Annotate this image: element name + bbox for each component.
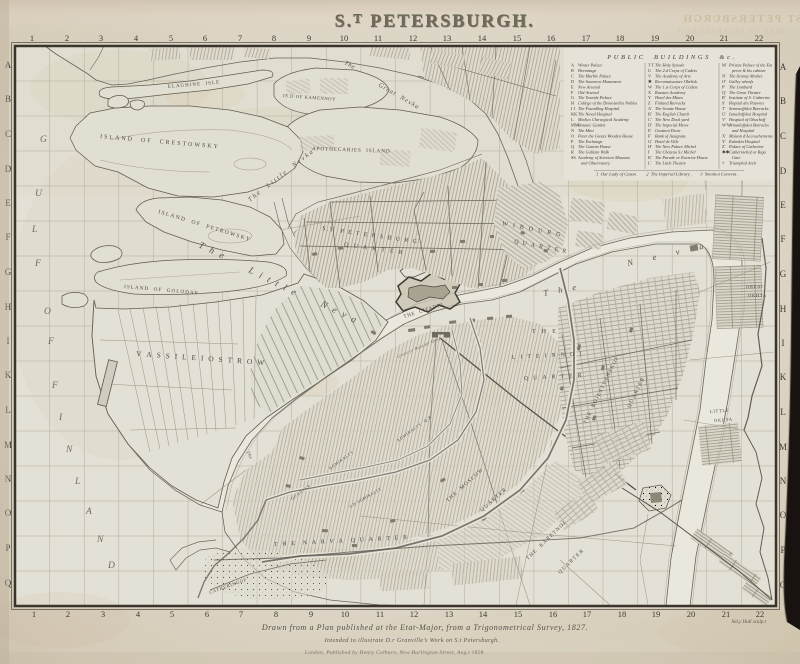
svg-text:I': I' <box>648 150 650 155</box>
svg-text:12: 12 <box>410 609 419 619</box>
svg-text:E: E <box>571 84 574 89</box>
svg-text:The Galitzin Walk: The Galitzin Walk <box>578 150 609 155</box>
svg-text:MAP OF PETERSBURGH: MAP OF PETERSBURGH <box>677 27 783 36</box>
svg-text:B': B' <box>648 112 652 117</box>
svg-text:O: O <box>44 307 51 317</box>
svg-text:H: H <box>780 304 787 314</box>
svg-text:ST PETERSBURGH: ST PETERSBURGH <box>682 13 800 25</box>
svg-text:C: C <box>780 131 786 141</box>
svg-text:Hopital des Pauvres: Hopital des Pauvres <box>728 101 764 106</box>
svg-text:19: 19 <box>651 33 660 43</box>
svg-text:18: 18 <box>616 33 625 43</box>
svg-text:Private Palace of the Em: Private Palace of the Em <box>728 63 772 68</box>
svg-text:A': A' <box>648 106 652 111</box>
svg-text:H': H' <box>648 144 652 149</box>
svg-text:C': C' <box>648 117 652 122</box>
svg-text:L: L <box>31 225 37 235</box>
svg-text:D: D <box>780 166 787 176</box>
svg-text:6: 6 <box>205 609 209 619</box>
svg-text:Gate: Gate <box>732 155 740 160</box>
svg-text:Bank of Assignats: Bank of Assignats <box>655 133 686 138</box>
svg-text:Ismailoffskoi Hospital: Ismailoffskoi Hospital <box>728 112 768 117</box>
svg-text:N: N <box>780 476 787 486</box>
svg-text:17: 17 <box>583 609 592 619</box>
svg-text:T H E: T H E <box>532 329 558 335</box>
svg-text:R': R' <box>722 95 726 100</box>
svg-text:13: 13 <box>445 609 454 619</box>
svg-text:14: 14 <box>479 609 488 619</box>
svg-text:M': M' <box>722 63 727 68</box>
svg-text:O: O <box>571 133 574 138</box>
svg-text:L': L' <box>648 161 652 166</box>
svg-text:Russian Academy: Russian Academy <box>654 90 685 95</box>
svg-text:Jemailoffskoi Barracks: Jemailoffskoi Barracks <box>729 123 769 128</box>
svg-text:10: 10 <box>341 609 350 619</box>
svg-text:2: 2 <box>66 609 70 619</box>
svg-text:I: I <box>782 338 785 348</box>
svg-text:GREAT: GREAT <box>746 284 764 289</box>
svg-text:The Exchange: The Exchange <box>578 139 603 144</box>
svg-text:Q': Q' <box>722 90 726 95</box>
svg-text:P': P' <box>722 84 725 89</box>
svg-text:peror & his cabinet: peror & his cabinet <box>731 68 766 73</box>
svg-text:Hotel des Mines: Hotel des Mines <box>654 95 683 100</box>
svg-text:14: 14 <box>478 33 487 43</box>
svg-text:7: 7 <box>238 33 242 43</box>
svg-text:13: 13 <box>443 33 452 43</box>
svg-text:Triumphal Arch: Triumphal Arch <box>729 161 756 166</box>
svg-text:The Naval Hospital: The Naval Hospital <box>578 112 612 117</box>
svg-text:Winter Palace: Winter Palace <box>578 63 603 68</box>
svg-text:L: L <box>571 117 574 122</box>
svg-text:Drawn from a Plan published at: Drawn from a Plan published at the Etat-… <box>261 623 588 632</box>
svg-text:The Marble Palace: The Marble Palace <box>578 73 611 78</box>
svg-text:M: M <box>779 442 787 452</box>
svg-text:1 Our Lady of Cazan . 2: 1 Our Lady of Cazan . 2 The Imperial Lib… <box>596 172 739 177</box>
svg-text:N: N <box>65 445 73 455</box>
svg-text:K: K <box>780 372 787 382</box>
svg-text:17: 17 <box>582 33 591 43</box>
svg-text:1: 1 <box>30 33 34 43</box>
svg-text:F: F <box>34 259 41 269</box>
svg-text:20: 20 <box>687 609 696 619</box>
svg-text:B: B <box>780 96 786 106</box>
svg-text:SS: SS <box>571 155 576 160</box>
svg-text:15: 15 <box>513 33 522 43</box>
svg-text:The English Church: The English Church <box>655 112 689 117</box>
svg-text:Z': Z' <box>722 144 726 149</box>
svg-text:16: 16 <box>549 609 558 619</box>
svg-text:T T: T T <box>648 63 655 68</box>
svg-text:G: G <box>40 135 47 145</box>
svg-text:8: 8 <box>272 33 276 43</box>
svg-text:The Tauride Palace: The Tauride Palace <box>578 95 612 100</box>
svg-text:F: F <box>51 381 58 391</box>
svg-text:2: 2 <box>65 33 69 43</box>
svg-text:O': O' <box>722 79 726 84</box>
svg-text:U': U' <box>722 112 726 117</box>
svg-text:The New Dock yard: The New Dock yard <box>655 117 690 122</box>
svg-text:7: 7 <box>239 609 243 619</box>
svg-text:Old Arsenal: Old Arsenal <box>578 90 600 95</box>
svg-text:Gostinoi Dwor: Gostinoi Dwor <box>655 128 681 133</box>
svg-text:The 2.d Corps of Cadets: The 2.d Corps of Cadets <box>655 68 697 73</box>
svg-text:F': F' <box>648 133 651 138</box>
svg-text:PUBLIC BUILDINGS &c.: PUBLIC BUILDINGS &c. <box>606 54 737 61</box>
svg-text:D: D <box>571 79 574 84</box>
svg-text:G': G' <box>648 139 652 144</box>
svg-text:Medico Chirurgical Academy: Medico Chirurgical Academy <box>577 117 629 122</box>
svg-text:5: 5 <box>169 33 173 43</box>
svg-text:Institute of S. Catherine: Institute of S. Catherine <box>728 95 770 100</box>
svg-text:11: 11 <box>374 33 382 43</box>
svg-text:N: N <box>96 535 104 545</box>
svg-text:Maison d'Accouchements: Maison d'Accouchements <box>728 133 773 138</box>
svg-text:Kalinkin Hospital: Kalinkin Hospital <box>728 139 760 144</box>
svg-text:The Foundling Hospital: The Foundling Hospital <box>578 106 620 111</box>
svg-text:Z: Z <box>648 101 651 106</box>
svg-text:9: 9 <box>307 33 311 43</box>
svg-text:N': N' <box>722 73 726 78</box>
svg-text:19: 19 <box>652 609 661 619</box>
svg-text:Palace of Catherine: Palace of Catherine <box>728 144 764 149</box>
svg-text:Galley wharfs: Galley wharfs <box>729 79 754 84</box>
svg-text:Catherinehof or Riga: Catherinehof or Riga <box>729 150 766 155</box>
svg-text:Y: Y <box>648 95 651 100</box>
svg-text:1: 1 <box>32 609 36 619</box>
svg-text:S.T PETERSBURGH.: S.T PETERSBURGH. <box>335 11 535 31</box>
svg-text:Intended to illustrate D.r Gra: Intended to illustrate D.r Granville’s W… <box>324 638 500 644</box>
svg-text:and Observatory: and Observatory <box>581 161 610 166</box>
svg-text:9: 9 <box>309 609 313 619</box>
svg-text:3: 3 <box>99 33 103 43</box>
svg-text:OKHTA: OKHTA <box>748 293 767 298</box>
svg-text:A: A <box>85 507 92 517</box>
svg-text:E': E' <box>648 128 652 133</box>
svg-text:The Holy Synode: The Holy Synode <box>655 63 684 68</box>
svg-text:S': S' <box>722 101 725 106</box>
svg-text:5: 5 <box>170 609 174 619</box>
svg-text:A: A <box>780 62 787 72</box>
svg-text:I I: I I <box>571 106 576 111</box>
svg-text:✱: ✱ <box>648 79 652 84</box>
svg-text:D: D <box>107 561 115 571</box>
svg-text:The 1.st Corps of Cadets: The 1.st Corps of Cadets <box>655 84 698 89</box>
svg-text:The Senate House: The Senate House <box>655 106 686 111</box>
svg-text:Finland Barracks: Finland Barracks <box>654 101 686 106</box>
svg-text:X': X' <box>722 133 726 138</box>
svg-text:22: 22 <box>756 609 765 619</box>
svg-text:The Suwarow Monument: The Suwarow Monument <box>578 79 622 84</box>
svg-text:Reconnaissance Obelisk: Reconnaissance Obelisk <box>654 79 697 84</box>
svg-text:H: H <box>571 101 574 106</box>
svg-text:6: 6 <box>203 33 207 43</box>
svg-text:The Academy of Arts: The Academy of Arts <box>655 73 691 78</box>
svg-text:D': D' <box>648 123 652 128</box>
svg-text:K': K' <box>648 155 652 160</box>
svg-text:Botanic Garden: Botanic Garden <box>578 123 605 128</box>
svg-text:F: F <box>47 337 54 347</box>
svg-text:The Sennoy Market: The Sennoy Market <box>729 73 763 78</box>
svg-text:12: 12 <box>409 33 418 43</box>
svg-text:The Mint: The Mint <box>578 128 594 133</box>
svg-text:The Custom House: The Custom House <box>578 144 611 149</box>
svg-text:11: 11 <box>376 609 384 619</box>
svg-text:C: C <box>571 73 574 78</box>
svg-text:The Little Theatre: The Little Theatre <box>655 161 686 166</box>
svg-text:L: L <box>74 477 80 487</box>
svg-text:10: 10 <box>340 33 349 43</box>
svg-text:Sid.y Hall sculp.t: Sid.y Hall sculp.t <box>732 620 767 625</box>
svg-text:The New Palace Michel: The New Palace Michel <box>655 144 697 149</box>
svg-text:8: 8 <box>274 609 278 619</box>
svg-text:and Hospital: and Hospital <box>732 128 755 133</box>
svg-text:Academy of Sciences Museum: Academy of Sciences Museum <box>577 155 630 160</box>
svg-text:G: G <box>571 95 574 100</box>
svg-text:U: U <box>35 189 43 199</box>
svg-text:15: 15 <box>514 609 523 619</box>
svg-text:The Chateau S.t Michel: The Chateau S.t Michel <box>655 150 696 155</box>
svg-text:The Lombard: The Lombard <box>729 84 753 89</box>
svg-text:G: G <box>780 269 787 279</box>
svg-text:N: N <box>571 128 574 133</box>
svg-text:E: E <box>780 200 786 210</box>
svg-text:Y': Y' <box>722 139 726 144</box>
svg-text:College of the Demoiselles Nob: College of the Demoiselles Nobles <box>578 101 638 106</box>
svg-text:The Great Theatre: The Great Theatre <box>729 90 761 95</box>
svg-text:Semenoffskoi Barracks: Semenoffskoi Barracks <box>729 106 769 111</box>
svg-text:The Parade or Exercise House: The Parade or Exercise House <box>655 155 708 160</box>
svg-text:16: 16 <box>547 33 556 43</box>
svg-text:V': V' <box>722 117 726 122</box>
svg-text:Peter the Greats Wooden House: Peter the Greats Wooden House <box>577 133 633 138</box>
svg-text:L: L <box>780 407 786 417</box>
svg-text:3: 3 <box>101 609 105 619</box>
svg-text:R: R <box>571 150 574 155</box>
svg-text:T': T' <box>722 106 726 111</box>
svg-text:New Arsenal: New Arsenal <box>577 84 601 89</box>
svg-text:F: F <box>780 234 785 244</box>
svg-text:Hospital of Obuchoff: Hospital of Obuchoff <box>728 117 766 122</box>
svg-text:The Imperial Mews: The Imperial Mews <box>655 123 689 128</box>
svg-text:21: 21 <box>722 609 731 619</box>
svg-text:Hermitage: Hermitage <box>577 68 596 73</box>
svg-text:18: 18 <box>618 609 627 619</box>
svg-text:Hotel de Ville: Hotel de Ville <box>654 139 679 144</box>
svg-text:B: B <box>571 68 574 73</box>
